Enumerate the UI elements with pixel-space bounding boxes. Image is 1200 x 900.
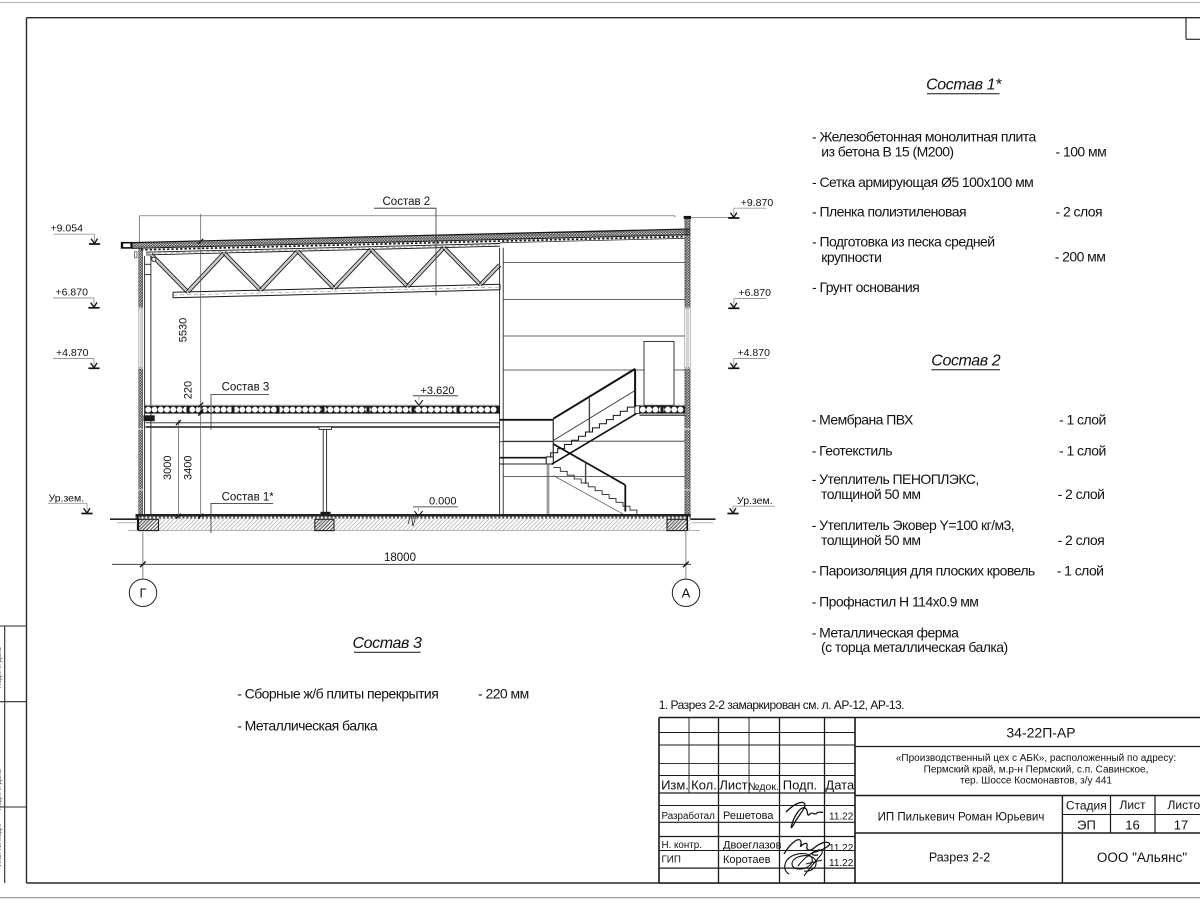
svg-text:- Сетка армирующая Ø5 100х100: - Сетка армирующая Ø5 100х100 мм <box>812 174 1033 190</box>
svg-text:Подп. и дата: Подп. и дата <box>0 647 3 688</box>
svg-text:1. Разрез 2-2 замаркирован см.: 1. Разрез 2-2 замаркирован см. л. АР-12,… <box>659 698 904 712</box>
svg-text:ЭП: ЭП <box>1077 817 1096 832</box>
svg-text:- Грунт основания: - Грунт основания <box>812 279 919 295</box>
svg-text:- Металлическая балка: - Металлическая балка <box>237 718 378 734</box>
svg-text:Ур.зем.: Ур.зем. <box>737 495 773 507</box>
svg-text:- Мембрана ПВХ: - Мембрана ПВХ <box>812 412 914 428</box>
svg-text:- 1 слой: - 1 слой <box>1057 563 1104 579</box>
svg-text:ИП Пилькевич Роман Юрьевич: ИП Пилькевич Роман Юрьевич <box>878 812 1045 824</box>
svg-text:Решетова: Решетова <box>723 810 774 822</box>
svg-text:- Геотекстиль: - Геотекстиль <box>812 442 893 458</box>
svg-text:- 200 мм: - 200 мм <box>1055 249 1106 265</box>
svg-text:- 220 мм: - 220 мм <box>478 686 529 702</box>
svg-text:- Профнастил Н 114х0.9 мм: - Профнастил Н 114х0.9 мм <box>812 594 979 610</box>
svg-text:3000: 3000 <box>162 455 174 479</box>
svg-text:- Металлическая ферма: - Металлическая ферма <box>812 624 959 640</box>
svg-text:ГИП: ГИП <box>662 854 681 865</box>
svg-text:толщиной 50 мм: толщиной 50 мм <box>821 532 920 548</box>
svg-text:из бетона В 15 (М200): из бетона В 15 (М200) <box>821 144 953 160</box>
svg-text:- 1 слой: - 1 слой <box>1059 442 1106 458</box>
svg-text:- 100 мм: - 100 мм <box>1056 144 1107 160</box>
svg-text:18000: 18000 <box>384 552 416 564</box>
svg-text:Состав 1*: Состав 1* <box>222 491 275 503</box>
svg-text:11.22: 11.22 <box>829 843 854 854</box>
svg-text:Состав 3: Состав 3 <box>222 382 270 394</box>
svg-text:- 2 слоя: - 2 слоя <box>1056 204 1103 220</box>
svg-text:- Пленка полиэтиленовая: - Пленка полиэтиленовая <box>812 204 966 220</box>
svg-text:+4.870: +4.870 <box>56 347 89 359</box>
svg-text:крупности: крупности <box>821 249 881 265</box>
svg-text:Состав 2: Состав 2 <box>383 196 431 208</box>
svg-text:- Подготовка из песка средней: - Подготовка из песка средней <box>812 233 995 249</box>
svg-text:толщиной 50 мм: толщиной 50 мм <box>821 486 920 502</box>
svg-text:+9.870: +9.870 <box>741 197 774 209</box>
svg-text:№док.: №док. <box>748 781 779 793</box>
svg-text:Разработал: Разработал <box>662 811 716 822</box>
svg-text:- Утеплитель ПЕНОПЛЭКС,: - Утеплитель ПЕНОПЛЭКС, <box>812 471 979 487</box>
svg-text:3400: 3400 <box>182 455 194 479</box>
svg-text:А: А <box>682 585 691 600</box>
svg-text:Подп. и дата: Подп. и дата <box>0 769 3 810</box>
svg-text:Состав 1*: Состав 1* <box>926 77 1002 94</box>
svg-text:Инв. № подл.: Инв. № подл. <box>0 823 3 867</box>
svg-text:Состав 2: Состав 2 <box>931 352 1000 369</box>
svg-text:(с торца металлическая балка): (с торца металлическая балка) <box>821 639 1008 655</box>
svg-text:Н. контр.: Н. контр. <box>662 840 702 851</box>
svg-text:- 2 слой: - 2 слой <box>1058 486 1105 502</box>
svg-text:ООО "Альянс": ООО "Альянс" <box>1097 850 1187 865</box>
svg-text:Разрез 2-2: Разрез 2-2 <box>929 850 990 864</box>
svg-text:Пермский край, м.р-н Пермский,: Пермский край, м.р-н Пермский, с.п. Сави… <box>924 764 1149 775</box>
svg-text:Коротаев: Коротаев <box>723 854 771 866</box>
svg-text:34-22П-АР: 34-22П-АР <box>1006 725 1075 741</box>
svg-text:0.000: 0.000 <box>429 496 457 508</box>
svg-text:Кол.: Кол. <box>691 778 717 793</box>
svg-text:Лист: Лист <box>719 777 747 792</box>
svg-text:Стадия: Стадия <box>1066 798 1107 812</box>
svg-text:- Железобетонная монолитная п: - Железобетонная монолитная плита <box>812 128 1037 144</box>
svg-text:- 2 слоя: - 2 слоя <box>1058 532 1105 548</box>
svg-text:- 1 слой: - 1 слой <box>1059 412 1106 428</box>
svg-text:+6.870: +6.870 <box>739 287 772 299</box>
svg-text:16: 16 <box>1125 817 1139 832</box>
svg-text:Листов: Листов <box>1168 798 1200 812</box>
svg-text:11.22: 11.22 <box>829 858 854 869</box>
svg-text:11.22: 11.22 <box>829 812 854 823</box>
svg-text:Г: Г <box>139 585 146 600</box>
svg-text:+4.870: +4.870 <box>738 347 771 359</box>
svg-text:- Пароизоляция для плоских кро: - Пароизоляция для плоских кровель <box>812 563 1035 579</box>
svg-text:Двоеглазов: Двоеглазов <box>723 839 782 851</box>
svg-text:Изм.: Изм. <box>661 778 689 793</box>
svg-text:+9.054: +9.054 <box>51 223 84 235</box>
svg-text:тер. Шоссе Космонавтов, з/у 44: тер. Шоссе Космонавтов, з/у 441 <box>960 776 1112 787</box>
svg-text:Ур.зем.: Ур.зем. <box>49 493 85 505</box>
svg-text:220: 220 <box>182 381 194 399</box>
svg-text:«Производственный цех с АБК»,: «Производственный цех с АБК», расположен… <box>896 753 1176 764</box>
svg-text:Подп.: Подп. <box>783 777 818 792</box>
svg-text:Лист: Лист <box>1119 798 1146 812</box>
svg-text:+3.620: +3.620 <box>421 385 455 397</box>
svg-text:- Утеплитель Эковер Y=100 кг/м: - Утеплитель Эковер Y=100 кг/м3, <box>812 517 1014 533</box>
svg-text:- Сборные ж/б плиты перекрыти: - Сборные ж/б плиты перекрытия <box>237 686 438 702</box>
svg-text:17: 17 <box>1174 817 1188 832</box>
svg-text:5530: 5530 <box>178 318 190 342</box>
svg-text:Дата: Дата <box>825 777 855 792</box>
svg-text:Состав 3: Состав 3 <box>353 635 422 652</box>
svg-text:+6.870: +6.870 <box>56 286 89 298</box>
